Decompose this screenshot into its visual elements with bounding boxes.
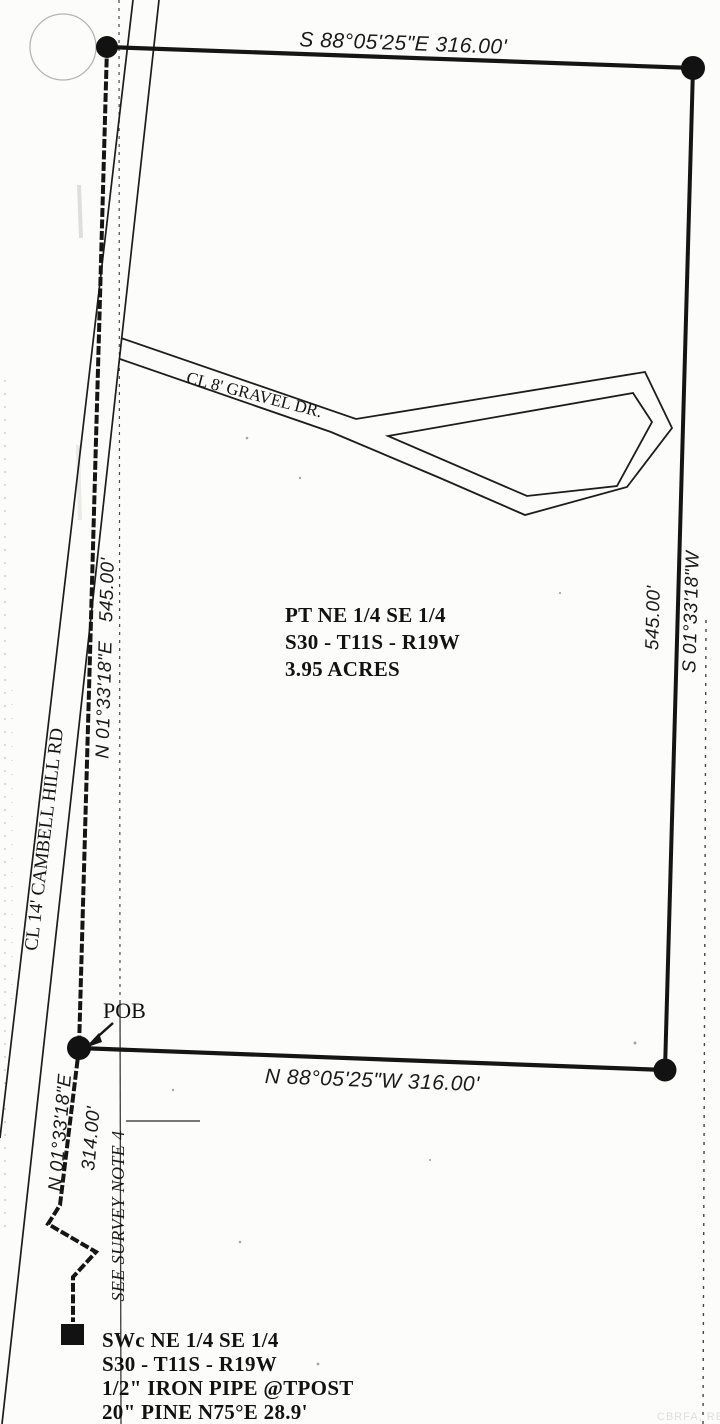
- watermark-text: CBRFA, RE: [657, 1411, 720, 1423]
- right-dashed-line: [703, 620, 706, 1424]
- sw-corner-line4: 20" PINE N75°E 28.9': [102, 1400, 308, 1424]
- east-bearing-label: S 01°33'18"W: [679, 549, 703, 673]
- west-bearing-label: N 01°33'18"E: [92, 641, 116, 759]
- tie-distance-label: 314.00': [78, 1104, 105, 1171]
- sw-corner-monument-square: [61, 1324, 84, 1345]
- scan-specks: [172, 437, 637, 1366]
- west-boundary-line: [79, 47, 107, 1048]
- sw-corner-line3: 1/2" IRON PIPE @TPOST: [102, 1376, 354, 1400]
- pob-label: POB: [103, 998, 146, 1023]
- scan-streak: [79, 185, 81, 238]
- south-boundary-line: [79, 1048, 665, 1070]
- parcel-desc-line2: S30 - T11S - R19W: [285, 630, 460, 654]
- sw-corner-line2: S30 - T11S - R19W: [102, 1352, 277, 1376]
- corner-monument-se: [654, 1059, 677, 1082]
- west-distance-label: 545.00': [96, 556, 119, 622]
- plat-drawing: S 88°05'25"E 316.00' N 88°05'25"W 316.00…: [0, 0, 720, 1424]
- road-name-label: CL 14' CAMBELL HILL RD: [21, 727, 68, 952]
- parcel-desc-line1: PT NE 1/4 SE 1/4: [285, 603, 446, 627]
- corner-monument-pob: [67, 1036, 91, 1060]
- gravel-drive-loop-island: [388, 393, 652, 496]
- sw-corner-line1: SWc NE 1/4 SE 1/4: [102, 1328, 279, 1352]
- gravel-drive-label: CL 8' GRAVEL DR.: [185, 368, 325, 421]
- corner-monument-nw: [96, 36, 118, 58]
- forty-line-dashed: [119, 0, 120, 1000]
- corner-monument-ne: [681, 56, 705, 80]
- parcel-desc-line3: 3.95 ACRES: [285, 657, 400, 681]
- monument-circle: [30, 14, 96, 80]
- survey-plat-page: S 88°05'25"E 316.00' N 88°05'25"W 316.00…: [0, 0, 720, 1424]
- survey-note-label: SEE SURVEY NOTE 4: [108, 1131, 128, 1302]
- east-distance-label: 545.00': [642, 584, 665, 650]
- tie-bearing-label: N 01°33'18"E: [45, 1073, 76, 1192]
- south-boundary-label: N 88°05'25"W 316.00': [264, 1065, 480, 1096]
